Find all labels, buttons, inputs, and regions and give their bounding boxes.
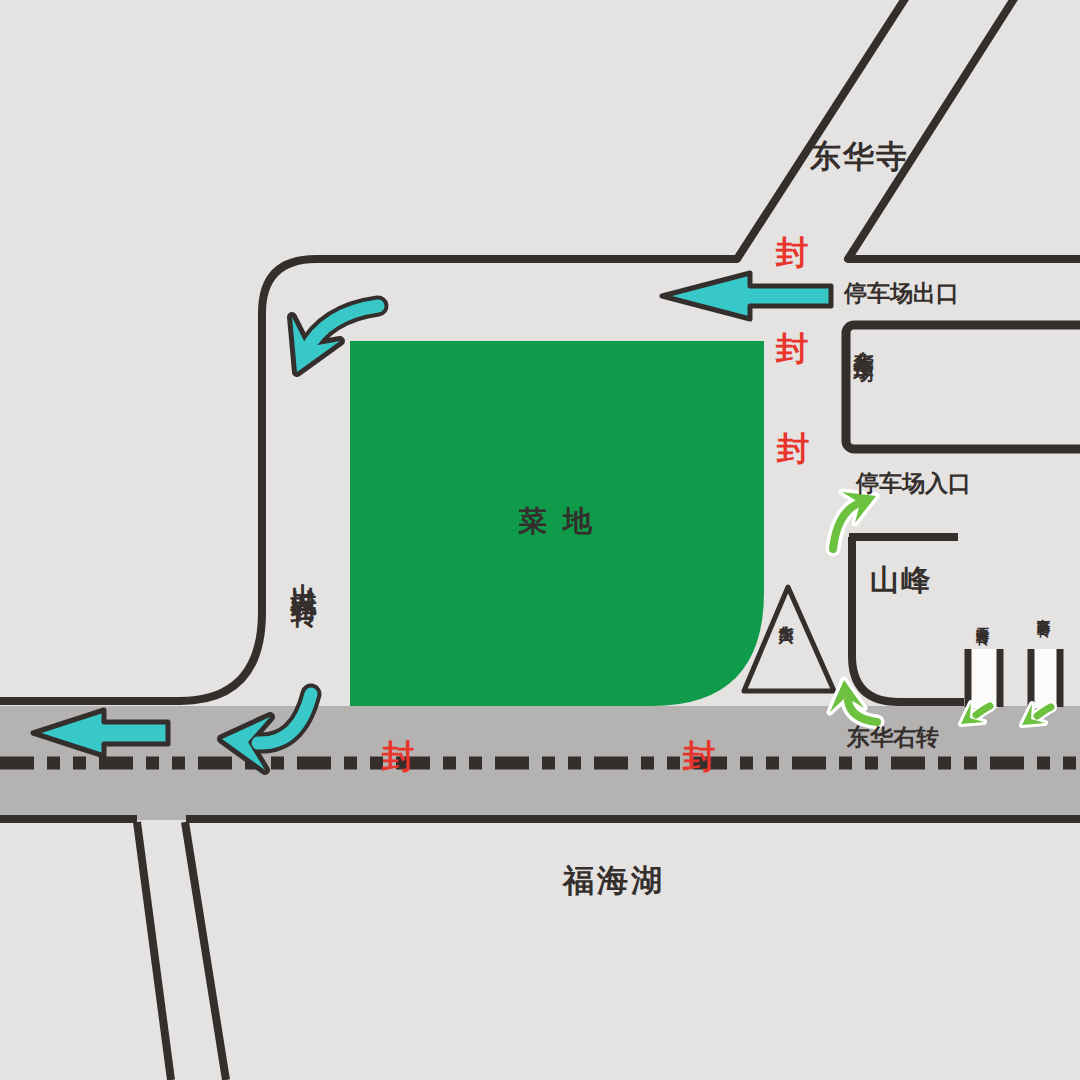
closed-marker: 封 [777, 432, 810, 465]
closed-marker: 封 [683, 740, 716, 773]
parking-entrance-label: 停车场入口 [856, 471, 971, 497]
entrance-triangle-label: 东华入口 [779, 612, 794, 620]
closed-marker: 封 [776, 236, 809, 269]
mountain-label: 山峰 [870, 564, 932, 596]
closed-marker: 封 [382, 740, 415, 773]
mountain-block-outline [849, 537, 964, 702]
parking-exit-arrow [662, 273, 831, 319]
lake-label: 福海湖 [563, 864, 665, 899]
donghua-right-turn-label: 东华右转 [847, 725, 939, 751]
parking-lot-box [846, 325, 1080, 449]
side-street-2-opening [1034, 649, 1057, 708]
lower-left-road [137, 822, 226, 1080]
field-label: 菜 地 [518, 505, 596, 537]
map-canvas [0, 0, 1080, 1080]
side-street-2-label: 高车下路口右转 [1037, 608, 1050, 615]
exit-city-right-turn-label: 出城右转 [291, 563, 317, 587]
temple-label: 东华寺 [810, 140, 909, 175]
closed-marker: 封 [776, 332, 809, 365]
traffic-sketch-map: 东华寺 停车场出口 东华停车场 停车场入口 山峰 菜 地 出城右转 东华入口 东… [0, 0, 1080, 1080]
side-street-1-opening [971, 649, 998, 708]
parking-exit-label: 停车场出口 [844, 281, 959, 307]
parking-lot-label: 东华停车场 [854, 334, 874, 349]
side-street-1-label: 石背路口右转 [976, 617, 989, 623]
